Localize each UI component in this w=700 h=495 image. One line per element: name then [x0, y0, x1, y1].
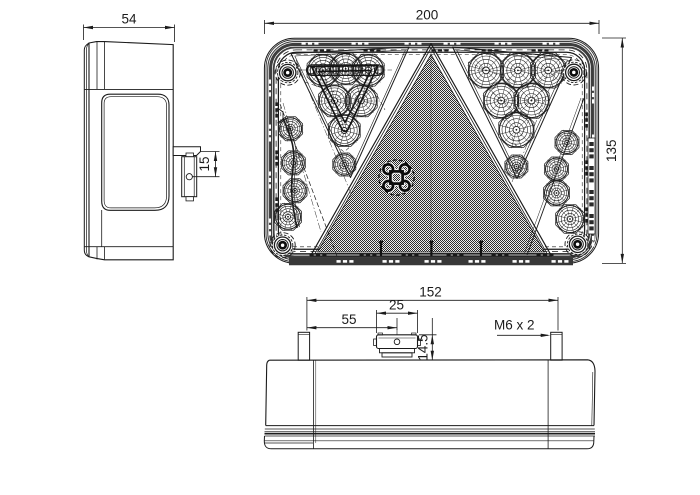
svg-text:152: 152 — [419, 285, 442, 300]
svg-text:200: 200 — [416, 8, 439, 23]
svg-text:14.5: 14.5 — [416, 334, 431, 360]
svg-text:M6 x 2: M6 x 2 — [494, 318, 535, 333]
svg-text:25: 25 — [389, 298, 404, 313]
svg-text:54: 54 — [121, 12, 137, 27]
svg-text:135: 135 — [604, 139, 619, 162]
svg-text:55: 55 — [341, 312, 356, 327]
svg-text:15: 15 — [197, 156, 212, 171]
